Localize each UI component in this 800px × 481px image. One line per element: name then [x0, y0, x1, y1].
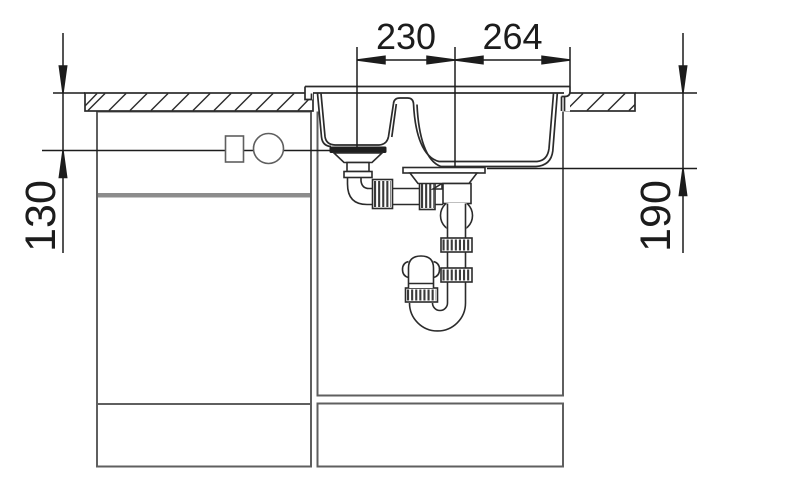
right-drain-flange: [403, 168, 485, 174]
right-drain-neck: [443, 184, 471, 204]
dimensions: 230 264 130 190: [17, 16, 697, 253]
dim-label-230: 230: [376, 16, 436, 57]
socket-symbol-circle: [254, 134, 284, 164]
vertical-pipe-coupling-lower: [441, 268, 472, 282]
pipe-coupling-left: [373, 180, 393, 209]
left-tailpiece: [347, 163, 369, 172]
arrowhead: [59, 66, 66, 93]
drain-plumbing: [330, 147, 486, 331]
elbow-inner: [361, 178, 371, 189]
p-trap-cap-tab-right: [434, 262, 440, 278]
left-cabinet-shelf-band: [98, 193, 310, 198]
right-drain-body: [410, 173, 477, 184]
dim-label-130: 130: [17, 180, 65, 252]
left-strainer-body: [334, 153, 382, 163]
utility-symbols: [226, 134, 284, 164]
vertical-pipe-coupling-upper: [441, 238, 472, 252]
left-cabinet-body: [97, 112, 311, 467]
p-trap-coupling: [406, 288, 438, 302]
p-trap-cap-tab-left: [403, 262, 409, 278]
installation-drawing-page: 230 264 130 190: [0, 0, 800, 481]
right-cabinet-plinth: [318, 404, 564, 467]
installation-drawing: 230 264 130 190: [0, 0, 800, 481]
dim-label-264: 264: [482, 16, 542, 57]
arrowhead: [542, 56, 570, 64]
arrowhead: [59, 151, 66, 178]
p-trap-outer: [410, 303, 466, 331]
socket-symbol-square: [226, 136, 244, 162]
arrowhead: [679, 169, 686, 196]
left-tailpiece-collar: [344, 172, 372, 178]
arrowhead: [679, 66, 686, 93]
arrowhead: [357, 56, 385, 64]
dim-label-190: 190: [632, 180, 680, 252]
p-trap-inner: [433, 303, 448, 311]
left-drain-seal: [330, 147, 387, 154]
arrowhead: [427, 56, 455, 64]
elbow-outer: [348, 178, 372, 205]
left-cabinet: [97, 112, 311, 467]
arrowhead: [455, 56, 483, 64]
